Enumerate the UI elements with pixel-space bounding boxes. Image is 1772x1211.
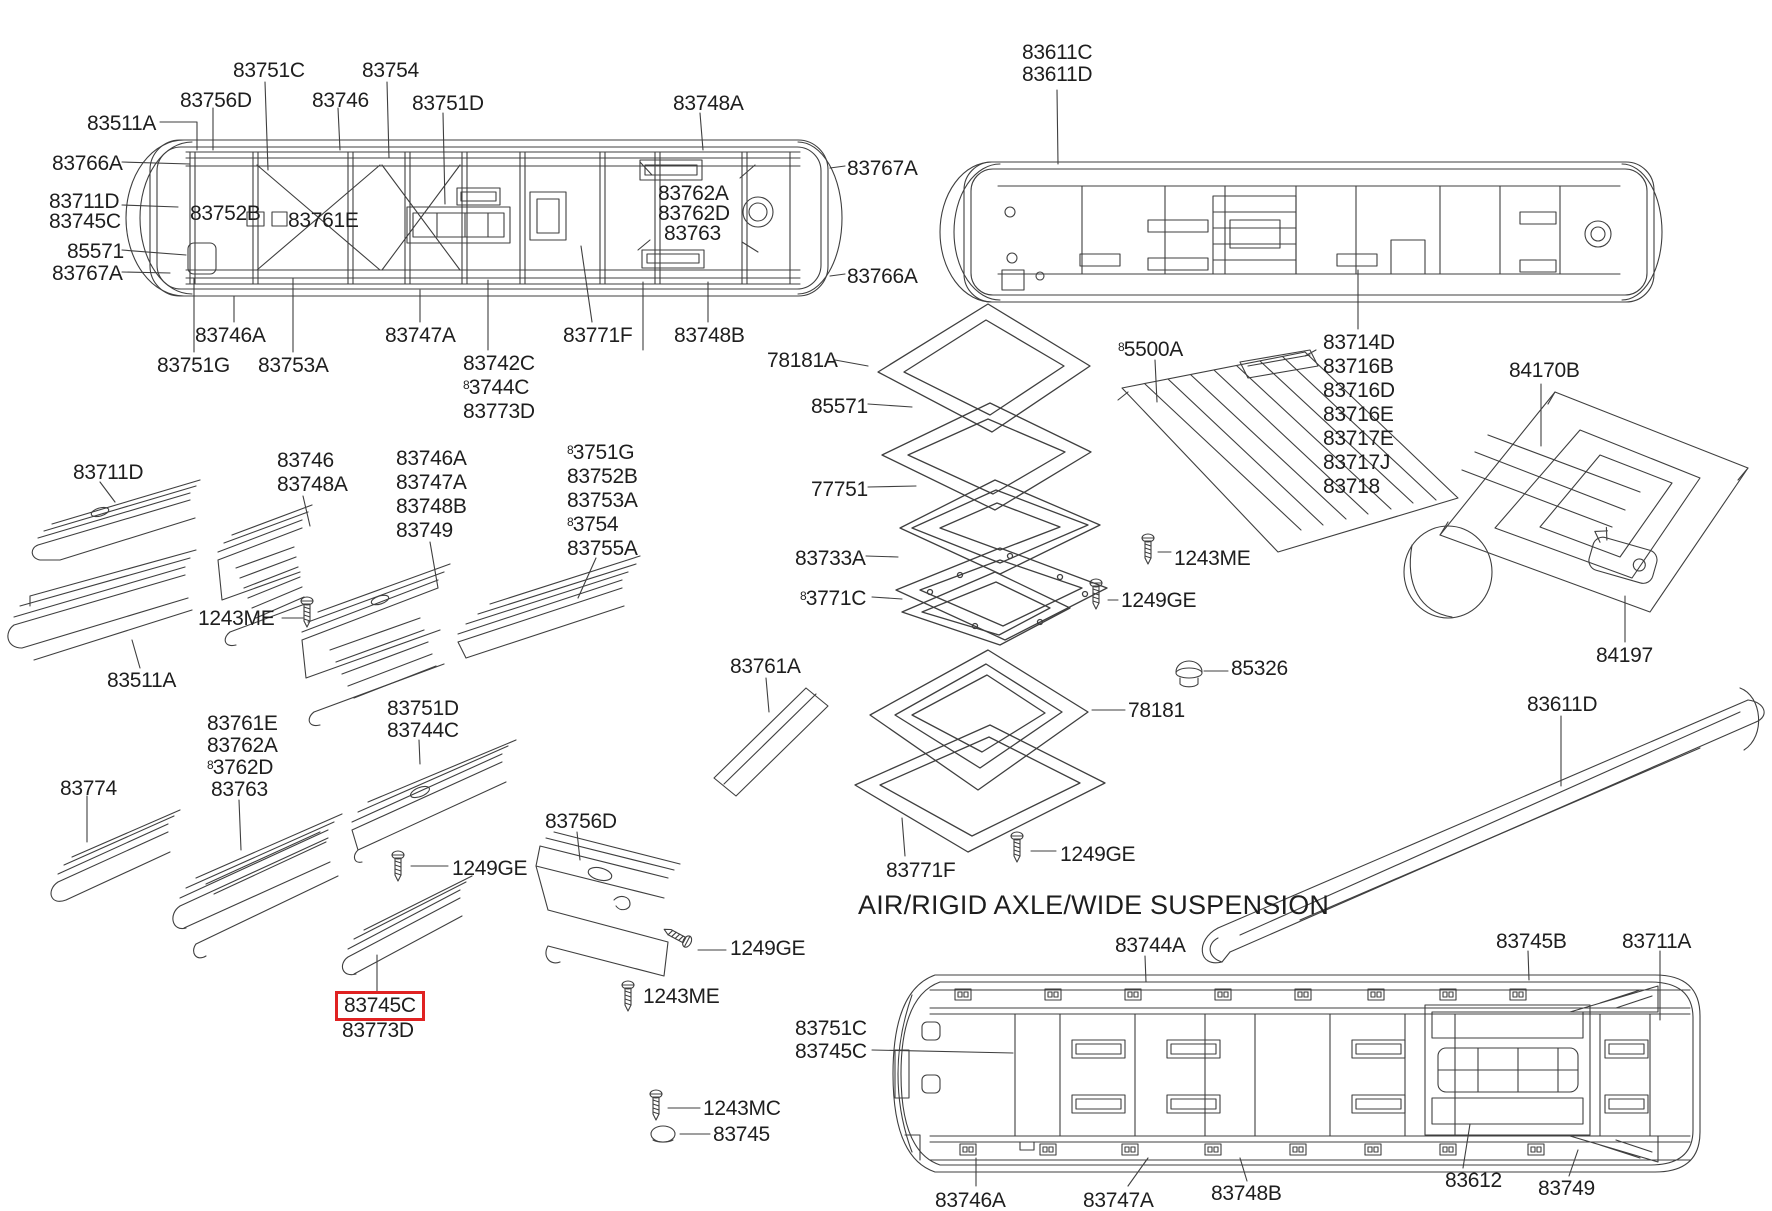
part-label-83766A: 83766A bbox=[52, 153, 123, 174]
part-label-83746A: 83746A bbox=[935, 1190, 1006, 1211]
part-label-83511A: 83511A bbox=[87, 113, 156, 134]
part-label-83612: 83612 bbox=[1445, 1170, 1502, 1191]
part-label-83754: 83754 bbox=[362, 60, 419, 81]
side-rail-83611D bbox=[1202, 688, 1764, 963]
part-label-83751C: 83751C bbox=[233, 60, 305, 81]
part-label-83716E: 83716E bbox=[1323, 404, 1394, 425]
part-label-83747A: 83747A bbox=[385, 325, 456, 346]
part-label-83753A: 83753A bbox=[567, 490, 638, 511]
part-label-83748A: 83748A bbox=[277, 474, 348, 495]
part-label-83748A: 83748A bbox=[673, 93, 744, 114]
part-label-83748B: 83748B bbox=[396, 496, 467, 517]
part-label-83751D: 83751D bbox=[387, 698, 459, 719]
part-label-85326: 85326 bbox=[1231, 658, 1288, 679]
leader-lines bbox=[87, 82, 1660, 1186]
part-label-83749: 83749 bbox=[1538, 1178, 1595, 1199]
part-label-1249GE: 1249GE bbox=[730, 938, 805, 959]
cap-icon bbox=[651, 1126, 675, 1142]
part-label-85571: 85571 bbox=[67, 241, 124, 262]
part-label-83744A: 83744A bbox=[1115, 935, 1186, 956]
part-label-83611D: 83611D bbox=[1527, 694, 1597, 715]
screw-icon bbox=[392, 851, 404, 881]
overhead-console bbox=[1404, 392, 1748, 618]
part-label-83611C: 83611C bbox=[1022, 42, 1092, 63]
part-label-78181: 78181 bbox=[1128, 700, 1185, 721]
grommet-icon bbox=[1176, 661, 1202, 687]
part-label-83746A: 83746A bbox=[195, 325, 266, 346]
screw-icon bbox=[622, 981, 634, 1011]
part-label-83773D: 83773D bbox=[342, 1020, 414, 1041]
part-label-83744C: 83744C bbox=[463, 377, 529, 398]
part-label-83745: 83745 bbox=[713, 1124, 770, 1145]
screw-icon bbox=[650, 1090, 662, 1120]
screw-icon bbox=[301, 597, 313, 627]
part-label-1243ME: 1243ME bbox=[643, 986, 719, 1007]
part-label-83762D: 83762D bbox=[658, 203, 730, 224]
part-label-1249GE: 1249GE bbox=[1121, 590, 1196, 611]
part-label-83756D: 83756D bbox=[545, 811, 617, 832]
part-label-83511A: 83511A bbox=[107, 670, 176, 691]
part-label-83717J: 83717J bbox=[1323, 452, 1390, 473]
part-label-83748B: 83748B bbox=[674, 325, 745, 346]
screw-icon bbox=[1090, 579, 1102, 609]
panel-clips bbox=[905, 989, 1544, 1160]
part-label-83753A: 83753A bbox=[258, 355, 329, 376]
part-label-83746A: 83746A bbox=[396, 448, 467, 469]
part-label-83766A: 83766A bbox=[847, 266, 918, 287]
roof-trim-panel-bottom bbox=[893, 975, 1700, 1172]
part-label-83754: 83754 bbox=[567, 514, 618, 535]
part-label-83771F: 83771F bbox=[886, 860, 955, 881]
part-label-83762A: 83762A bbox=[658, 183, 729, 204]
sunroof-frame-stack bbox=[855, 304, 1107, 852]
part-label-83711A: 83711A bbox=[1622, 931, 1691, 952]
part-label-77751: 77751 bbox=[811, 479, 868, 500]
part-label-85500A: 85500A bbox=[1118, 339, 1183, 360]
part-label-83745C: 83745C bbox=[335, 991, 425, 1021]
part-label-1243ME: 1243ME bbox=[198, 608, 274, 629]
part-label-1243MC: 1243MC bbox=[703, 1098, 781, 1119]
lamp-switch-part bbox=[1585, 525, 1662, 586]
part-label-83746: 83746 bbox=[312, 90, 369, 111]
part-label-83751D: 83751D bbox=[412, 93, 484, 114]
part-label-83756D: 83756D bbox=[180, 90, 252, 111]
part-label-83716B: 83716B bbox=[1323, 356, 1394, 377]
part-label-83751C: 83751C bbox=[795, 1018, 867, 1039]
part-label-83763: 83763 bbox=[211, 779, 268, 800]
part-label-83771F: 83771F bbox=[563, 325, 632, 346]
part-label-83733A: 83733A bbox=[795, 548, 866, 569]
part-label-83762A: 83762A bbox=[207, 735, 278, 756]
part-label-83748B: 83748B bbox=[1211, 1183, 1282, 1204]
screw-icon bbox=[661, 924, 693, 949]
part-label-78181A: 78181A bbox=[767, 350, 838, 371]
part-label-83761A: 83761A bbox=[730, 656, 801, 677]
part-label-1249GE: 1249GE bbox=[452, 858, 527, 879]
part-label-83751G: 83751G bbox=[567, 442, 634, 463]
screw-icon bbox=[1011, 832, 1023, 862]
suspension-variant-heading: AIR/RIGID AXLE/WIDE SUSPENSION bbox=[858, 890, 1329, 921]
sunshade-part bbox=[1118, 350, 1458, 552]
part-label-83762D: 83762D bbox=[207, 757, 273, 778]
hatched-corner bbox=[1570, 986, 1658, 1162]
part-label-83744C: 83744C bbox=[387, 720, 459, 741]
part-label-83718: 83718 bbox=[1323, 476, 1380, 497]
part-label-83747A: 83747A bbox=[1083, 1190, 1154, 1211]
roof-header-panel-right bbox=[940, 162, 1662, 302]
part-label-83752B: 83752B bbox=[567, 466, 638, 487]
part-label-83749: 83749 bbox=[396, 520, 453, 541]
part-label-83767A: 83767A bbox=[52, 263, 123, 284]
part-label-83611D: 83611D bbox=[1022, 64, 1092, 85]
part-label-83774: 83774 bbox=[60, 778, 117, 799]
part-label-83773D: 83773D bbox=[463, 401, 535, 422]
part-label-83751G: 83751G bbox=[157, 355, 230, 376]
parts-diagram-canvas: 83751C8375483756D8374683751D83748A83511A… bbox=[0, 0, 1772, 1211]
part-label-83767A: 83767A bbox=[847, 158, 918, 179]
part-label-83746: 83746 bbox=[277, 450, 334, 471]
part-label-83745C: 83745C bbox=[49, 211, 121, 232]
part-label-1249GE: 1249GE bbox=[1060, 844, 1135, 865]
part-label-83752B: 83752B bbox=[190, 203, 261, 224]
part-label-83761E: 83761E bbox=[288, 210, 359, 231]
part-label-83716D: 83716D bbox=[1323, 380, 1395, 401]
diagram-line-art bbox=[0, 0, 1772, 1211]
sticker-83761A bbox=[714, 688, 828, 796]
part-label-84170B: 84170B bbox=[1509, 360, 1580, 381]
part-label-1243ME: 1243ME bbox=[1174, 548, 1250, 569]
part-label-83771C: 83771C bbox=[800, 588, 866, 609]
fasteners bbox=[301, 534, 1202, 1142]
part-label-83711D: 83711D bbox=[49, 191, 119, 212]
part-label-83714D: 83714D bbox=[1323, 332, 1395, 353]
part-label-83711D: 83711D bbox=[73, 462, 143, 483]
part-label-83763: 83763 bbox=[664, 223, 721, 244]
screw-icon bbox=[1142, 534, 1154, 564]
part-label-83761E: 83761E bbox=[207, 713, 278, 734]
part-label-83747A: 83747A bbox=[396, 472, 467, 493]
part-label-83745C: 83745C bbox=[795, 1041, 867, 1062]
part-label-85571: 85571 bbox=[811, 396, 868, 417]
part-label-83745B: 83745B bbox=[1496, 931, 1567, 952]
part-label-84197: 84197 bbox=[1596, 645, 1653, 666]
part-label-83717E: 83717E bbox=[1323, 428, 1394, 449]
part-label-83742C: 83742C bbox=[463, 353, 535, 374]
part-label-83755A: 83755A bbox=[567, 538, 638, 559]
